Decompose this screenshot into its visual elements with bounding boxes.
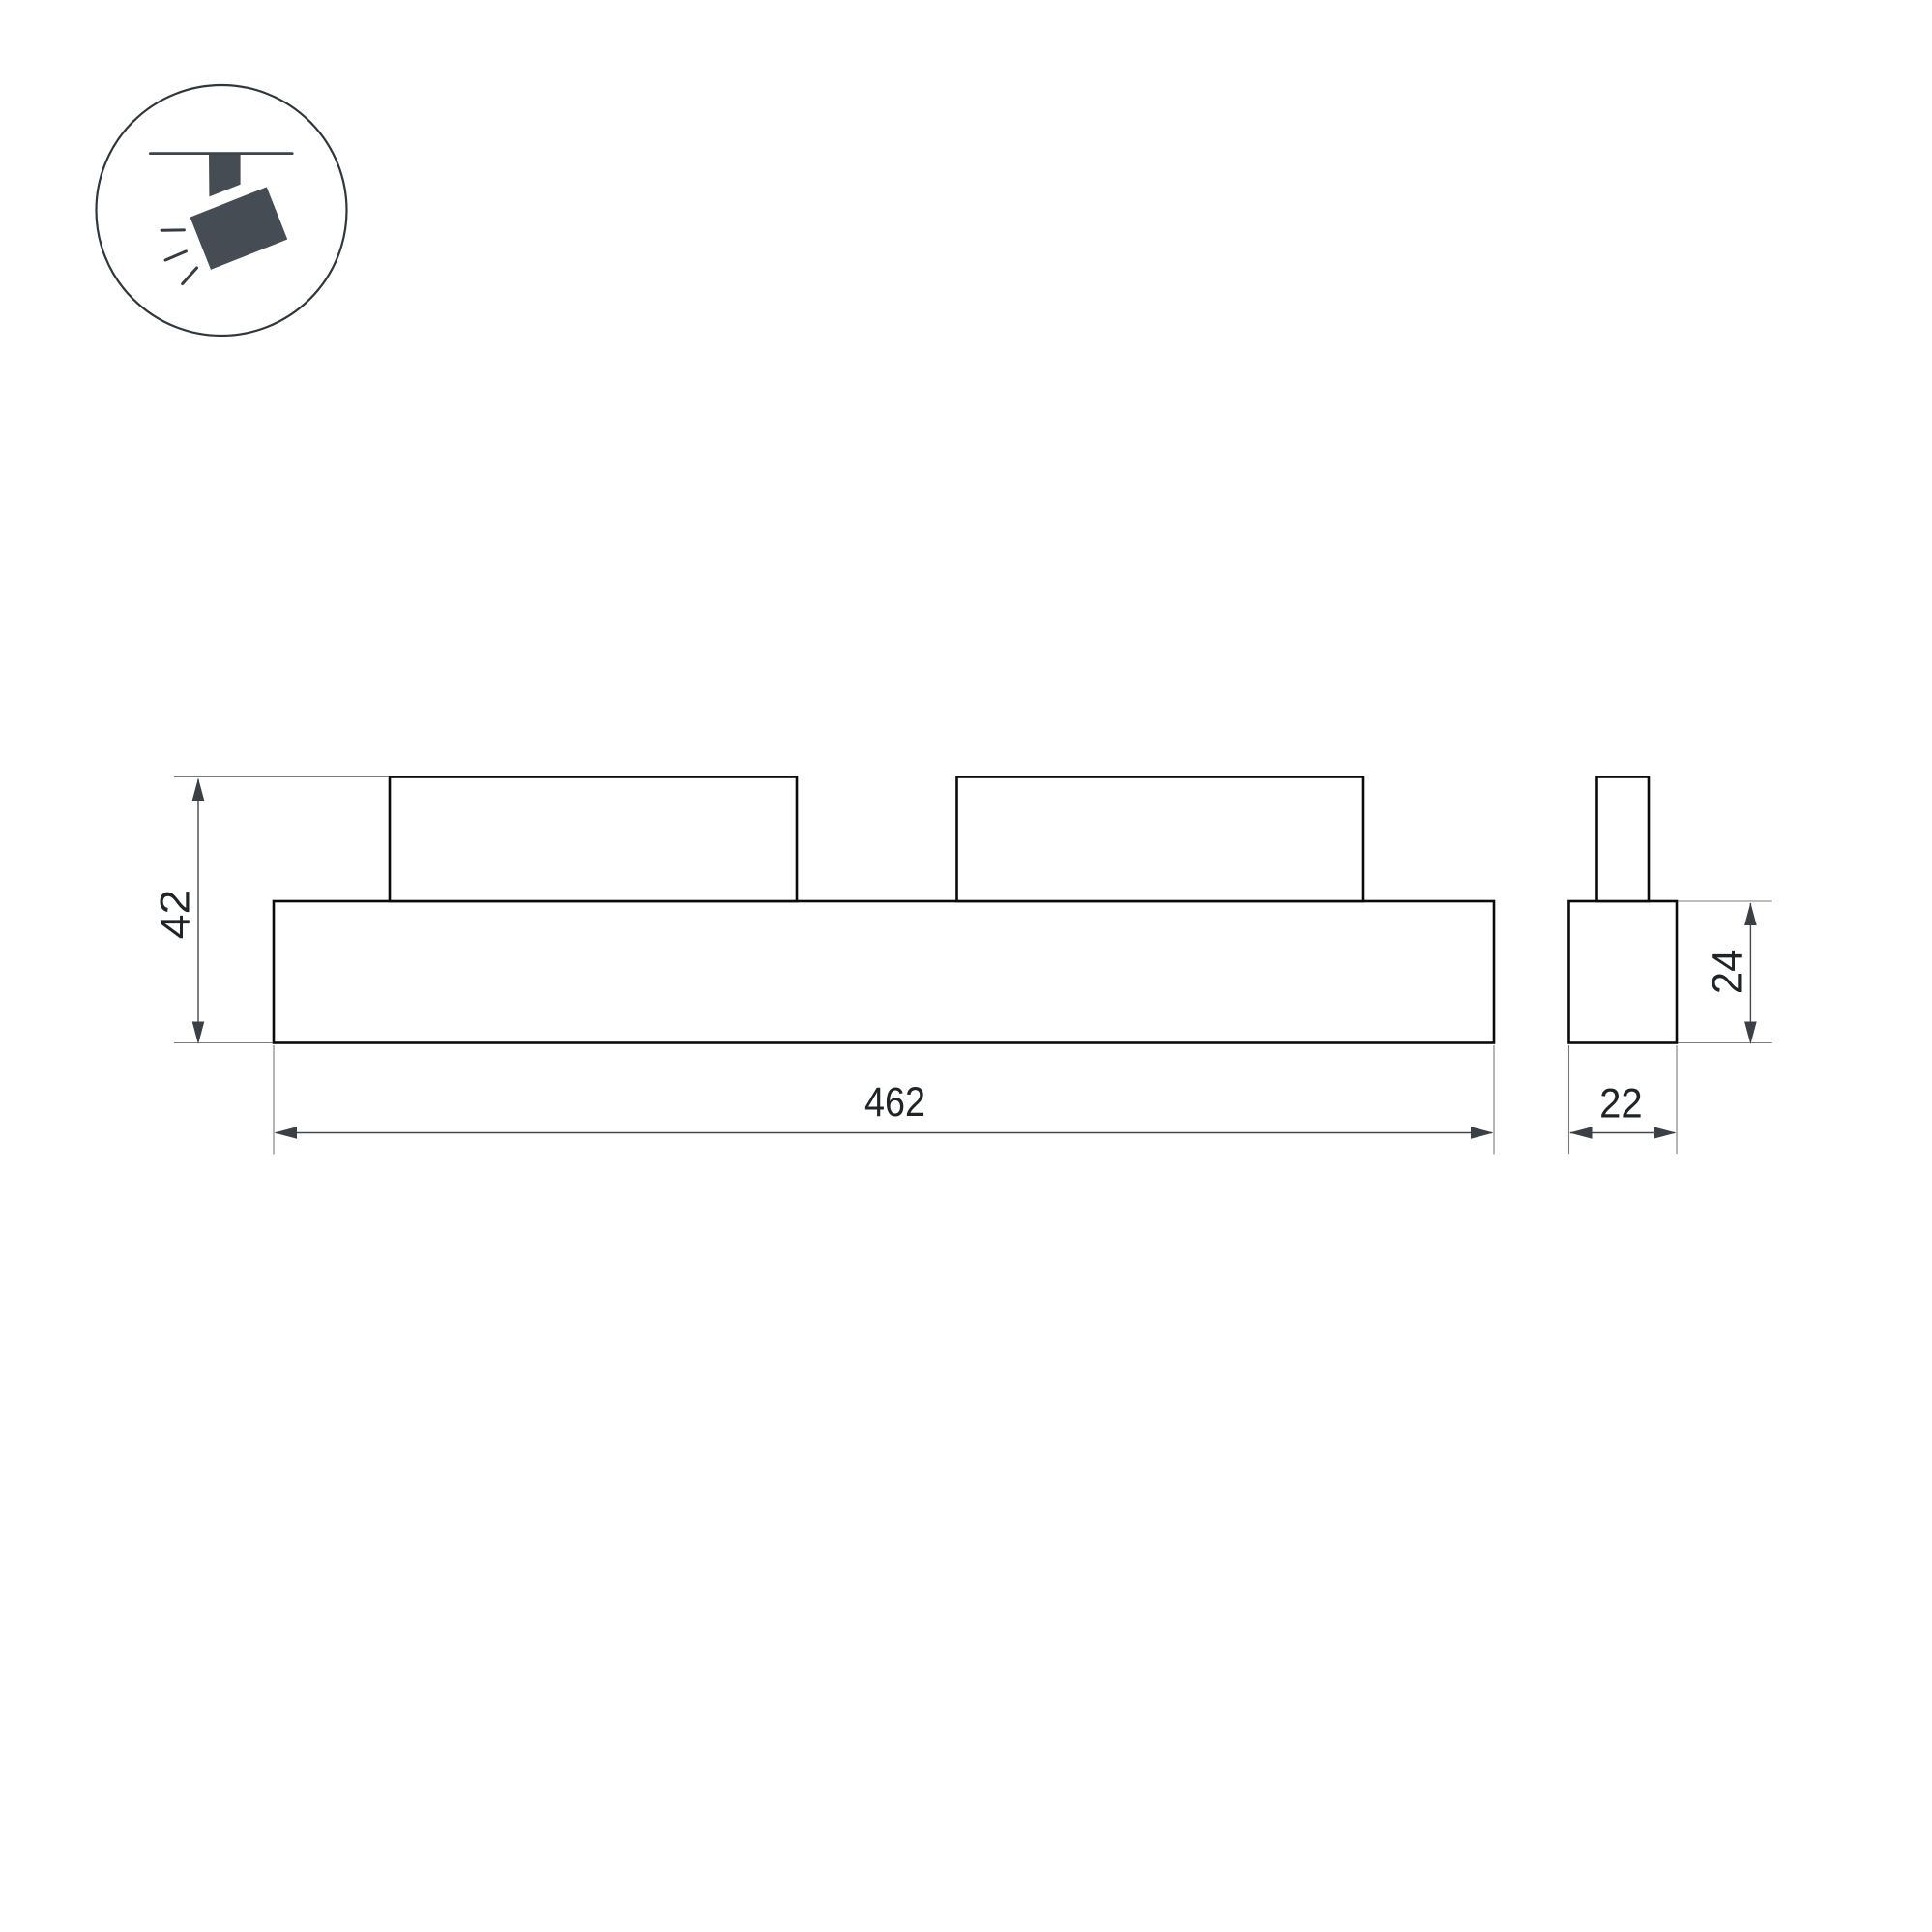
svg-text:22: 22 (1599, 1080, 1643, 1127)
svg-text:462: 462 (864, 1079, 925, 1126)
svg-text:24: 24 (1705, 950, 1751, 995)
svg-text:42: 42 (153, 890, 199, 940)
